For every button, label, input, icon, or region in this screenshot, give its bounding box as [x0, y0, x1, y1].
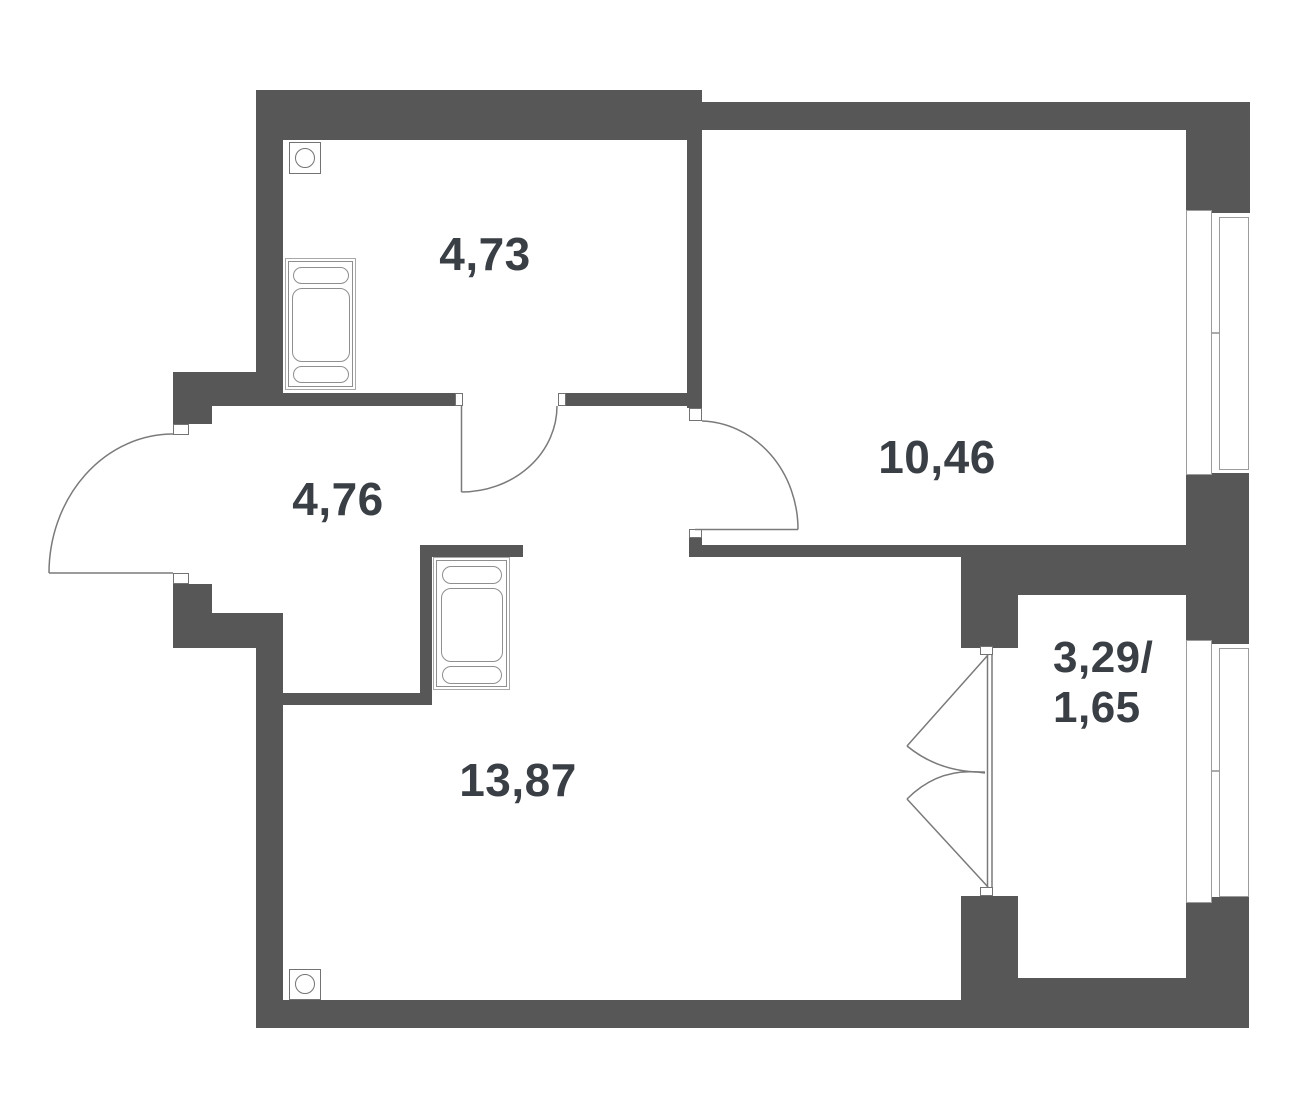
wall-top-bedroom: [256, 90, 702, 140]
balcony-door-bottom-leaf: [907, 799, 988, 887]
wall-hallway-top-left: [283, 393, 455, 406]
wall-entrance-bottom: [173, 584, 212, 648]
wall-right-top: [1186, 130, 1250, 213]
wall-hall-main-band: [420, 545, 523, 557]
wall-step-bar: [212, 613, 283, 648]
room-area-label-hallway: 4,76: [268, 476, 408, 522]
window-living-outer-pane: [1219, 217, 1249, 470]
bed-footboard: [293, 366, 349, 383]
wall-hallway-top-right: [566, 393, 687, 406]
window-living-inner-pane: [1186, 210, 1212, 475]
bed-footboard: [442, 666, 502, 684]
wall-left-bedroom: [256, 90, 283, 372]
wall-balcony-bottom: [1018, 978, 1186, 1028]
room-area-label-bedroom: 4,73: [415, 231, 555, 277]
jamb-living-door-top: [689, 408, 702, 421]
wall-top-living: [702, 102, 1250, 130]
bed-mattress: [441, 588, 503, 662]
bed-mattress: [292, 288, 350, 362]
balcony-door-bottom-arc: [907, 772, 985, 799]
vent-circle-icon: [295, 974, 315, 994]
bed-pillow: [293, 267, 349, 284]
bed-furniture: [285, 258, 356, 390]
room-area-label-main: 13,87: [448, 757, 588, 803]
wall-hall-main-vertical: [420, 557, 432, 705]
balcony-area-line2: 1,65: [1053, 683, 1153, 733]
jamb-entrance-bottom: [173, 573, 189, 584]
window-balcony-center-tick: [1212, 770, 1219, 772]
jamb-bedroom-door-left: [455, 393, 463, 406]
wall-living-main: [689, 545, 961, 557]
wall-divider-bedroom-living: [687, 140, 702, 408]
window-balcony-outer-pane: [1219, 648, 1249, 897]
room-area-label-living: 10,46: [867, 434, 1007, 480]
wall-pier-above-balcony-door: [961, 545, 1018, 648]
balcony-area-line1: 3,29/: [1053, 633, 1153, 683]
jamb-balcony-door-top: [980, 646, 993, 655]
living-door-arc: [702, 421, 798, 530]
bed-pillow: [442, 566, 502, 584]
bed-furniture: [433, 557, 510, 690]
wall-step-block: [173, 372, 283, 406]
vent-icon: [289, 142, 321, 174]
bedroom-door-arc: [462, 406, 558, 492]
wall-entrance-top: [173, 406, 212, 424]
jamb-balcony-door-bottom: [980, 887, 993, 896]
vent-circle-icon: [295, 148, 315, 168]
balcony-door-top-leaf: [907, 655, 988, 746]
entrance-door-arc: [49, 434, 173, 573]
wall-right-middle: [1186, 473, 1249, 644]
floor-plan: 4,73 10,46 4,76 13,87 3,29/ 1,65: [0, 0, 1300, 1120]
balcony-door-top-arc: [907, 746, 985, 772]
jamb-living-door-bottom: [689, 529, 702, 538]
wall-left-main: [256, 648, 283, 1028]
window-living-center-tick: [1212, 332, 1219, 334]
room-area-label-balcony: 3,29/ 1,65: [1053, 633, 1153, 733]
jamb-bedroom-door-right: [558, 393, 566, 406]
vent-icon: [289, 969, 321, 1000]
window-balcony-inner-pane: [1186, 640, 1212, 903]
wall-hall-main-horizontal: [283, 693, 432, 705]
jamb-entrance-top: [173, 424, 189, 435]
